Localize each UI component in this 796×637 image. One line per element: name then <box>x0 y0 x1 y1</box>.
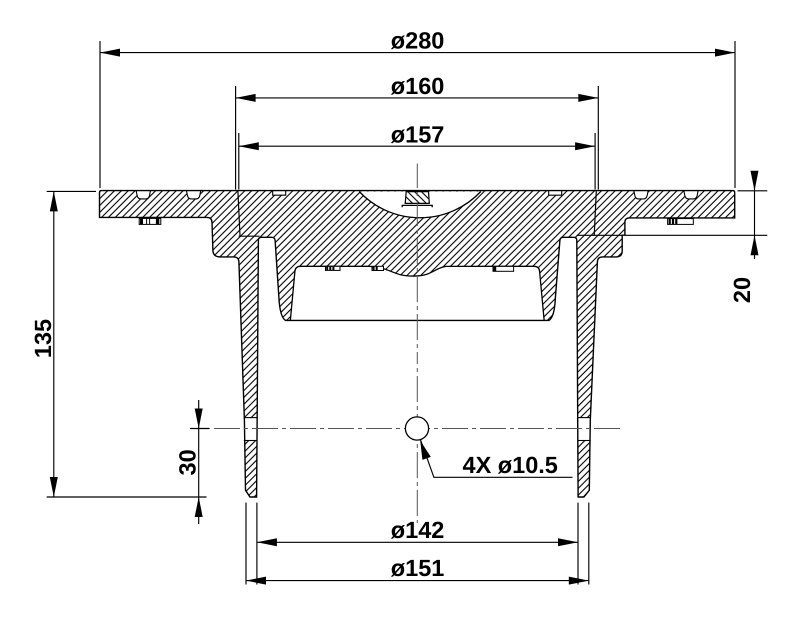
svg-text:30: 30 <box>174 449 200 475</box>
svg-text:135: 135 <box>30 319 56 358</box>
svg-text:ø151: ø151 <box>391 555 445 581</box>
svg-text:ø157: ø157 <box>391 122 445 148</box>
svg-text:ø142: ø142 <box>391 517 445 543</box>
svg-text:20: 20 <box>729 277 755 303</box>
svg-text:4X ø10.5: 4X ø10.5 <box>463 452 558 478</box>
svg-text:ø280: ø280 <box>391 27 445 53</box>
svg-text:ø160: ø160 <box>391 73 445 99</box>
